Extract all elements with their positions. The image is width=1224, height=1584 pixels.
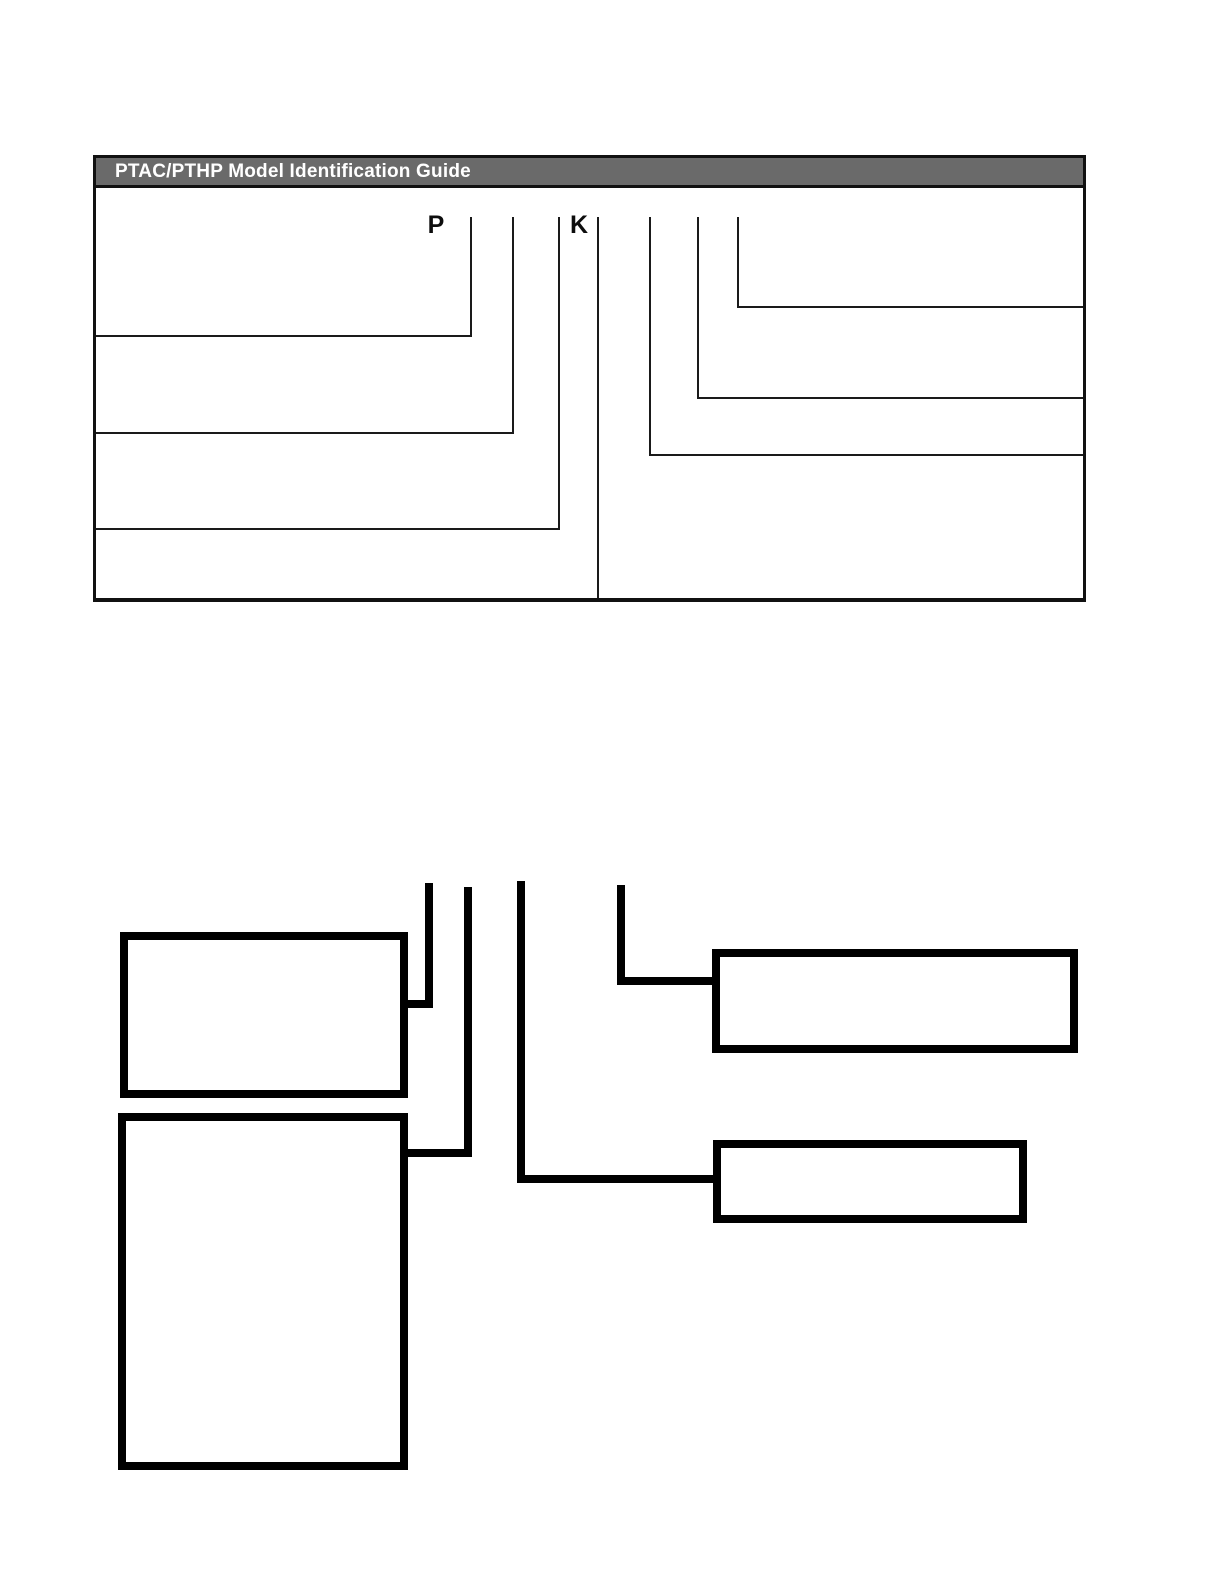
guide-diagram-area: P K — [96, 191, 1083, 598]
model-position-divider-3 — [558, 217, 560, 530]
guide-header-bar: PTAC/PTHP Model Identification Guide — [96, 158, 1083, 188]
callout-box-middle-right — [713, 1140, 1027, 1223]
connector-vertical-1 — [425, 883, 433, 1008]
callout-line-right-2 — [697, 397, 1083, 399]
model-id-guide-panel: PTAC/PTHP Model Identification Guide P K — [93, 155, 1086, 602]
document-page: PTAC/PTHP Model Identification Guide P K — [0, 0, 1224, 1584]
callout-line-left-1 — [96, 335, 472, 337]
model-position-divider-2 — [512, 217, 514, 434]
connector-vertical-4 — [617, 885, 625, 985]
connector-arm-box-top-right — [617, 977, 717, 985]
callout-box-bottom-left — [118, 1113, 408, 1470]
model-position-divider-4 — [597, 217, 599, 598]
model-letter-p: P — [423, 213, 449, 238]
callout-line-left-2 — [96, 432, 514, 434]
connector-vertical-3 — [517, 881, 525, 1183]
model-position-divider-5 — [649, 217, 651, 456]
callout-line-right-3 — [649, 454, 1083, 456]
callout-box-top-right — [712, 949, 1078, 1053]
connector-stub-box-bottom-left — [402, 1149, 472, 1157]
model-position-divider-7 — [737, 217, 739, 308]
callout-line-right-1 — [737, 306, 1083, 308]
guide-title: PTAC/PTHP Model Identification Guide — [115, 161, 471, 183]
callout-line-left-3 — [96, 528, 560, 530]
model-letter-k: K — [566, 213, 592, 238]
model-position-divider-1 — [470, 217, 472, 337]
connector-vertical-2 — [464, 887, 472, 1157]
model-position-divider-6 — [697, 217, 699, 399]
connector-arm-box-middle-right — [517, 1175, 717, 1183]
callout-box-top-left — [120, 932, 408, 1098]
